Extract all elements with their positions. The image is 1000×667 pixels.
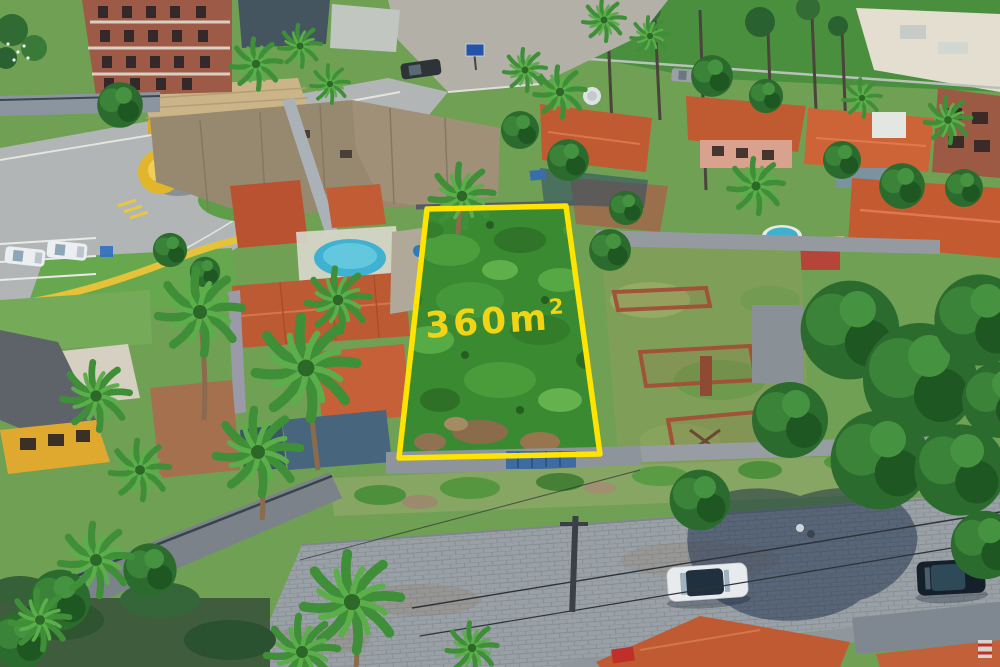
white-car (664, 562, 751, 611)
slate-roof-house (752, 305, 803, 385)
aerial-photo: 360m2 (0, 0, 1000, 667)
aerial-photo-canvas: 360m2 (0, 0, 1000, 667)
area-value: 360m (424, 297, 551, 347)
gray-roof-house (330, 4, 400, 52)
pedestrian (796, 524, 804, 532)
area-exponent: 2 (548, 294, 567, 319)
white-structure (872, 112, 906, 138)
street-sign (466, 44, 484, 56)
pool-house-roof (326, 184, 386, 228)
brick-pillar (700, 356, 712, 396)
blue-building (282, 410, 392, 470)
terracotta-roof (230, 180, 308, 248)
handicap-parking-mark (100, 246, 113, 257)
striped-flag-object (978, 640, 992, 658)
pedestrian (807, 530, 815, 538)
